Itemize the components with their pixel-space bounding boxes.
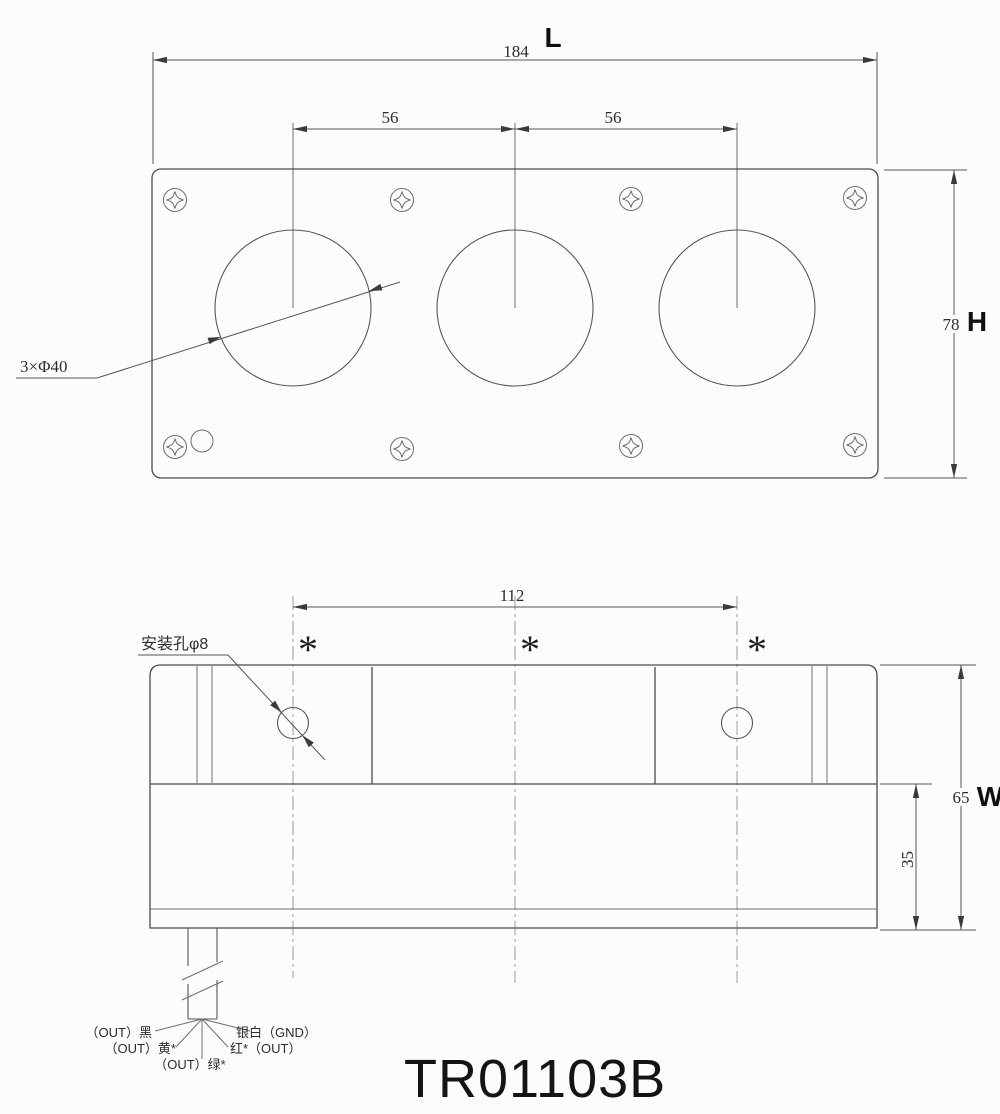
screw-icon — [620, 435, 643, 458]
width-value: 65 — [953, 788, 970, 807]
leader-line — [155, 1019, 202, 1031]
mount-hole-callout: 安装孔φ8 — [138, 635, 325, 760]
wire-label-black: （OUT）黑 — [86, 1025, 152, 1040]
screw-icon — [844, 434, 867, 457]
wire-labels: （OUT）黑 （OUT）黄* （OUT）绿* 红*（OUT） 银白（GND） — [86, 1025, 317, 1072]
holes-note-text: 3×Φ40 — [20, 357, 68, 376]
wire-label-green: （OUT）绿* — [154, 1057, 226, 1072]
width-dimension: 65 W — [880, 665, 1000, 930]
screw-icon — [391, 438, 414, 461]
height-letter: H — [967, 306, 987, 337]
screw-icon — [620, 188, 643, 211]
leader-line — [97, 282, 400, 378]
leader-line — [176, 1019, 202, 1047]
screw-icon — [164, 189, 187, 212]
span-dimension: 112 — [293, 586, 737, 607]
pitch-left-value: 56 — [382, 108, 399, 127]
mount-hole-note-text: 安装孔φ8 — [141, 635, 208, 653]
wire-label-silver: 银白（GND） — [236, 1025, 317, 1040]
screw-icon — [391, 189, 414, 212]
body-outline — [150, 665, 877, 928]
hole-diameter-callout: 3×Φ40 — [16, 282, 400, 378]
engineering-drawing-page: 184 L 56 56 — [0, 0, 1000, 1114]
height-dimension: 78 H — [884, 170, 987, 478]
cable-stub — [182, 928, 223, 1019]
screw-icon — [844, 187, 867, 210]
small-pilot-hole — [191, 430, 213, 452]
depth-value: 35 — [898, 851, 917, 868]
length-letter: L — [544, 22, 561, 53]
depth-dimension: 35 — [880, 784, 932, 930]
pitch-dimension: 56 56 — [293, 108, 737, 308]
top-view: 184 L 56 56 — [16, 22, 987, 478]
dimension-arrow — [368, 284, 382, 294]
span-value: 112 — [500, 586, 525, 605]
width-letter: W — [977, 781, 1000, 812]
part-number-title: TR01103B — [404, 1049, 666, 1109]
wire-label-yellow: （OUT）黄* — [104, 1041, 176, 1056]
bottom-view: 112 * * * 安装孔φ8 35 — [86, 586, 1000, 1072]
leader-line — [202, 1019, 228, 1047]
drawing-canvas: 184 L 56 56 — [0, 0, 1000, 1114]
length-value: 184 — [503, 42, 529, 61]
pitch-right-value: 56 — [605, 108, 622, 127]
wire-label-red: 红*（OUT） — [230, 1041, 302, 1056]
height-value: 78 — [943, 315, 960, 334]
screw-icon — [164, 436, 187, 459]
